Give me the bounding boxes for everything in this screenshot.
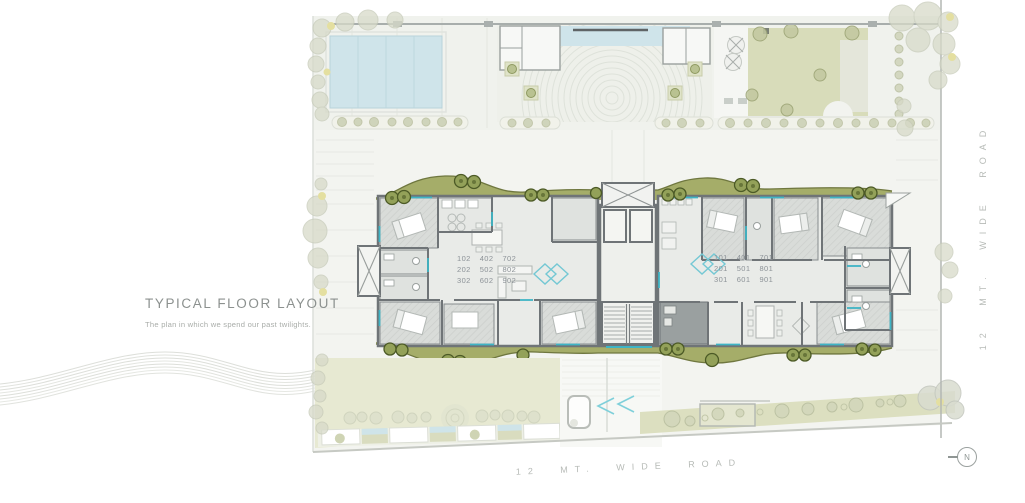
north-label: N xyxy=(964,453,970,462)
title-block: TYPICAL FLOOR LAYOUT The plan in which w… xyxy=(145,296,375,329)
lift-shaft xyxy=(630,210,652,242)
compass-tick xyxy=(948,456,958,458)
unit-numbers-right: 101 401 701 201 501 801 301 601 901 xyxy=(714,253,773,284)
unit-row: 102 402 702 xyxy=(457,254,516,263)
unit-number: 201 xyxy=(714,264,728,273)
right-balcony xyxy=(890,248,910,294)
unit-number: 202 xyxy=(457,265,471,274)
building xyxy=(358,175,910,369)
stair-lift-core xyxy=(600,183,656,347)
top-lawn xyxy=(746,24,868,116)
road-label-right: 12 MT. WIDE ROAD xyxy=(978,87,988,387)
lift-shaft xyxy=(604,210,626,242)
unit-number: 701 xyxy=(759,253,773,262)
unit-number: 801 xyxy=(759,264,773,273)
floor-plan-page: TYPICAL FLOOR LAYOUT The plan in which w… xyxy=(0,0,1025,503)
page-subtitle: The plan in which we spend our past twil… xyxy=(145,320,375,329)
decorative-waves xyxy=(0,352,315,405)
unit-row: 201 501 801 xyxy=(714,264,773,273)
site-plan-drawing xyxy=(0,0,1025,503)
unit-number: 302 xyxy=(457,276,471,285)
swimming-pool xyxy=(326,32,446,112)
bottom-lawn xyxy=(315,358,562,448)
unit-number: 502 xyxy=(480,265,494,274)
unit-numbers-left: 102 402 702 202 502 802 302 602 902 xyxy=(457,254,516,285)
unit-number: 102 xyxy=(457,254,471,263)
unit-row: 202 502 802 xyxy=(457,265,516,274)
left-balcony xyxy=(358,246,380,296)
unit-number: 702 xyxy=(502,254,516,263)
unit-number: 902 xyxy=(502,276,516,285)
staircase xyxy=(602,302,654,344)
unit-number: 401 xyxy=(737,253,751,262)
unit-number: 901 xyxy=(759,275,773,284)
unit-row: 101 401 701 xyxy=(714,253,773,262)
seating-terrace xyxy=(714,26,748,118)
unit-number: 101 xyxy=(714,253,728,262)
unit-number: 802 xyxy=(502,265,516,274)
page-title: TYPICAL FLOOR LAYOUT xyxy=(145,296,375,311)
compass: N xyxy=(957,447,977,467)
unit-number: 402 xyxy=(480,254,494,263)
unit-number: 601 xyxy=(737,275,751,284)
unit-number: 301 xyxy=(714,275,728,284)
unit-number: 501 xyxy=(737,264,751,273)
unit-row: 302 602 902 xyxy=(457,276,516,285)
unit-number: 602 xyxy=(480,276,494,285)
unit-row: 301 601 901 xyxy=(714,275,773,284)
